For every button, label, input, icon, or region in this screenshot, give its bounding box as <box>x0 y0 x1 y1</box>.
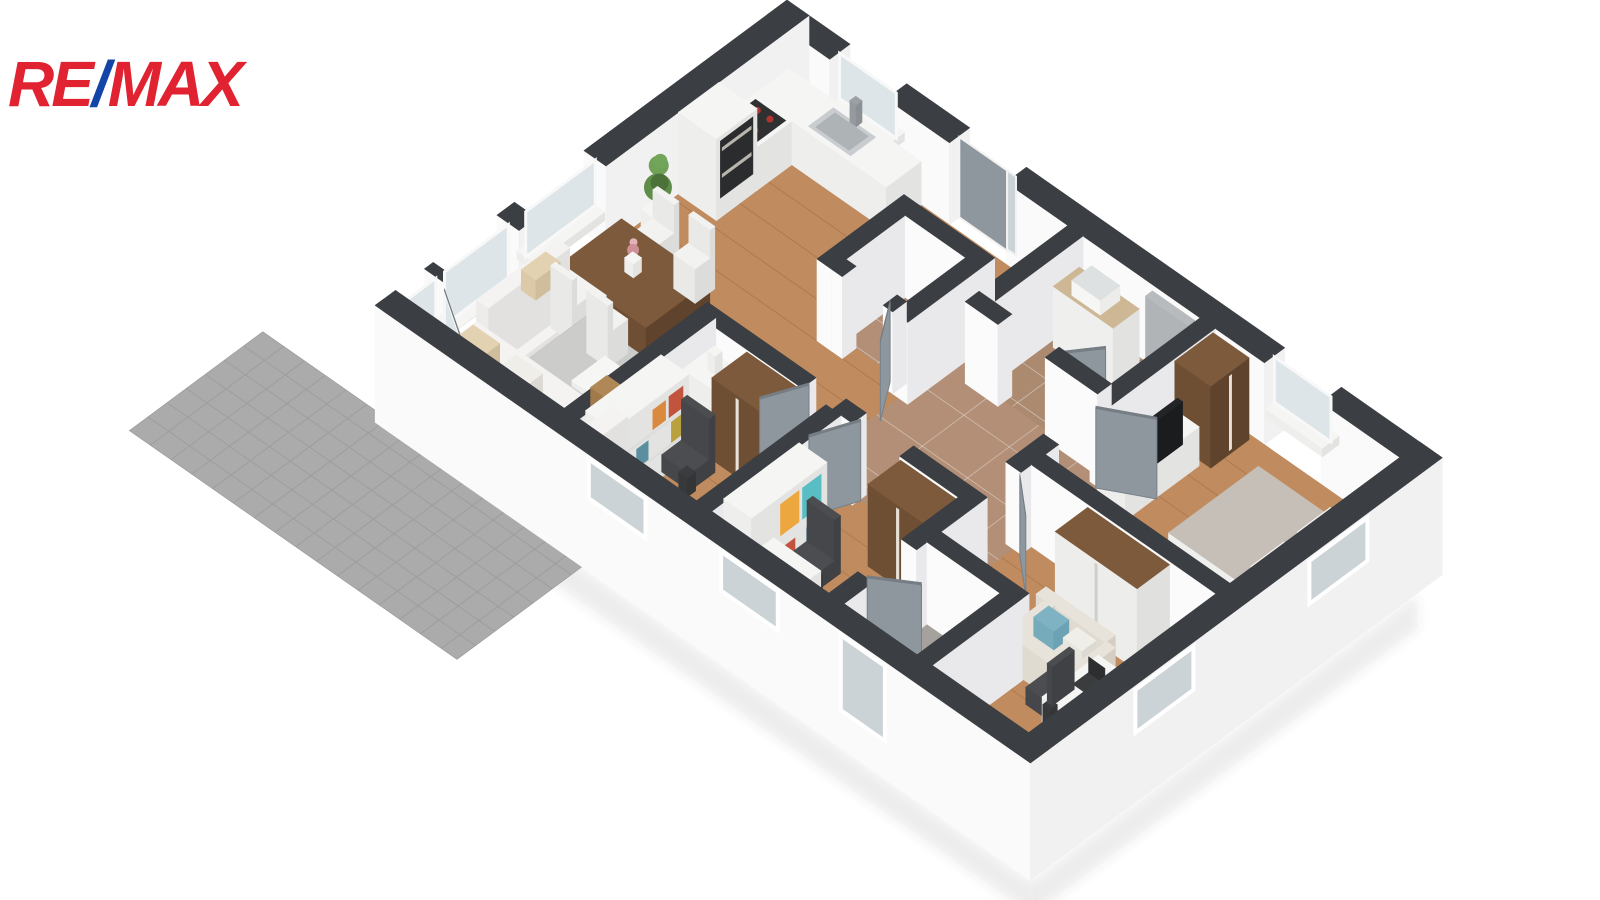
wardrobe-seam <box>736 398 739 474</box>
wardrobe-seam <box>1229 375 1231 451</box>
floorplan-render <box>0 0 1600 900</box>
wardrobe-seam <box>896 508 899 584</box>
master-door <box>1096 406 1157 499</box>
desk-lamp <box>708 346 723 375</box>
wall-wc <box>832 259 856 358</box>
page: RE/MAX <box>0 0 1600 900</box>
cooktop-burner <box>766 116 773 123</box>
master-ne-window <box>1266 357 1340 457</box>
plant-foliage <box>653 154 667 168</box>
kitchen-faucet <box>850 96 862 127</box>
